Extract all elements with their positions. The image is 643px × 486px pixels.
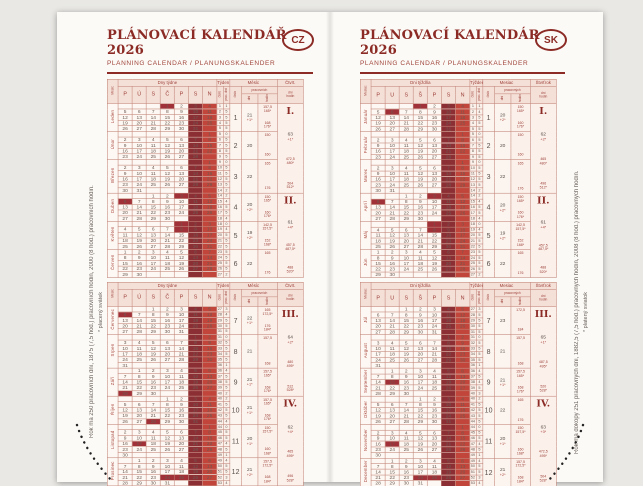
day-name-3: Š	[413, 86, 427, 103]
hours-group: 168176*	[258, 386, 277, 395]
quarter-label: Čtvrt.	[277, 282, 303, 289]
month-hours-cell: 150165*160176*	[511, 104, 530, 132]
day-name-0: P	[371, 289, 385, 306]
country-badge-label: CZ	[291, 35, 304, 46]
hours-value: 168	[511, 362, 530, 366]
month-workdays-extra: +2*	[242, 473, 258, 477]
hours-wrap: 150160	[258, 132, 277, 158]
day-name-5: S	[188, 86, 202, 103]
month-number-cell: 2	[483, 132, 495, 160]
week-sub-label-0-text: číslo	[218, 91, 221, 98]
day-cell	[160, 272, 174, 278]
week-workdays-cell: 2	[223, 272, 229, 278]
month-number-cell: 10	[483, 396, 495, 424]
day-cell: 30	[399, 481, 413, 486]
day-name-2: S	[146, 86, 160, 103]
working-sub-label-1: hodin	[258, 94, 277, 104]
day-cell	[188, 480, 202, 486]
hours-wrap: 157,5168	[258, 335, 277, 367]
month-workdays-cell: 20+1*	[242, 424, 258, 458]
month-name-cell-text: Duben	[111, 199, 115, 213]
month-name-cell: September	[360, 368, 371, 396]
month-workdays-cell: 22+1*	[242, 306, 258, 334]
week-sub-label-0-text: číslo	[471, 294, 474, 301]
day-name-0: P	[118, 86, 132, 103]
month-hours-cell: 150157,5*160168*	[511, 424, 530, 458]
month-hours-cell: 165176	[511, 396, 530, 424]
hours-value: 165	[511, 162, 530, 166]
month-name-cell: Březen	[107, 160, 118, 194]
month-workdays-extra: +2*	[242, 236, 258, 240]
table-scale-wrap: MěsícDny týdneTýdenMěsícČtvrt.PÚSČPSNčís…	[107, 79, 304, 278]
hours-group: 488520*	[540, 266, 547, 275]
table-scale-wrap: MesiacDni týždňaTýždeňMesiacŠtvrťrokPUSŠ…	[360, 79, 557, 278]
month-workdays-cell: 22	[242, 160, 258, 194]
working-sub-label-0: dní	[495, 297, 511, 307]
month-workdays-cell: 20+2*	[495, 193, 511, 221]
week-workdays-cell: 2	[476, 272, 482, 278]
hours-value: 520*	[287, 270, 294, 274]
hours-group: 165	[511, 251, 530, 256]
working-sub-label-0: dní	[495, 94, 511, 104]
month-number-cell: 11	[230, 424, 242, 458]
hours-value: 157,5	[258, 337, 277, 341]
hours-group: 520528*	[540, 385, 547, 394]
month-workdays-extra: +1*	[242, 411, 258, 415]
hours-value: 176	[258, 187, 277, 191]
hours-group: 168176*	[258, 414, 277, 423]
quarter-sub-label: dní hodín	[530, 86, 556, 103]
hours-group: 157,5172,5*	[258, 460, 277, 469]
hours-wrap: 157,5172,5*168184*	[511, 459, 530, 485]
month-hours-cell: 150157,5*160168*	[258, 424, 277, 458]
hours-value: 495*	[287, 365, 294, 369]
working-sub-label-1-text: hodin	[266, 94, 269, 102]
day-cell	[203, 480, 217, 486]
month-hours-cell: 142,5157,5*152168*	[258, 221, 277, 249]
month-name-cell-text: Červenec	[111, 309, 115, 330]
hours-wrap: 157,5165*168176*	[258, 104, 277, 130]
month-hours-cell: 157,5168	[511, 335, 530, 369]
calendar-table: MěsícDny týdneTýdenMěsícČtvrt.PÚSČPSNčís…	[107, 79, 304, 278]
hours-wrap: 165172,5*176184*	[258, 307, 277, 333]
month-name-cell-text: Březen	[111, 168, 115, 183]
day-name-2: S	[399, 289, 413, 306]
quarter-cell: I.62+2*465480*496512*	[530, 104, 556, 194]
day-cell	[441, 272, 455, 278]
quarter-cell: IV.62+4*465495*496528*	[277, 396, 303, 486]
month-number-cell: 8	[483, 335, 495, 369]
working-sub-label-0: dní	[242, 94, 258, 104]
day-name-5: S	[441, 86, 455, 103]
day-name-4: P	[427, 86, 441, 103]
working-sub-label-0-text: dní	[248, 299, 251, 304]
hours-wrap: 150157,5*160168*	[511, 425, 530, 457]
month-corner-label: Mesiac	[360, 79, 371, 103]
calendar-table: MěsícDny týdneTýdenMěsícČtvrt.PÚSČPSNčís…	[107, 282, 304, 486]
hours-group: 157,5	[511, 337, 530, 342]
month-name-cell-text: Leden	[111, 110, 115, 123]
hours-group: 176	[511, 418, 530, 423]
quarter-wrap: I.63+1*472,5480*504512*	[278, 104, 303, 192]
hours-group: 157,5	[258, 336, 277, 341]
hours-value: 480*	[286, 162, 295, 166]
quarter-wrap: IV.62+4*465495*496528*	[278, 397, 303, 485]
quarter-wrap: II.61+4*457,5487,5*488520*	[531, 194, 556, 277]
hours-value: 150	[511, 134, 530, 138]
hours-group: 457,5487,5*	[538, 243, 548, 252]
hours-value: 495*	[287, 455, 294, 459]
day-name-1: Ú	[132, 289, 146, 306]
hours-value: 160	[511, 154, 530, 158]
hours-wrap: 142,5157,5*152168*	[258, 222, 277, 248]
hours-value: 157,5*	[258, 431, 277, 435]
page-header: PLÁNOVACÍ KALENDÁŘ 2026 PLANNING CALENDA…	[107, 28, 313, 74]
hours-value: 165	[258, 252, 277, 256]
month-number-label-text: číslo	[487, 294, 490, 301]
hours-wrap: 150157,5*160168*	[258, 425, 277, 457]
month-name-cell-text: December	[364, 460, 368, 482]
quarter-cell: III.64+2*480495*512528*	[277, 306, 303, 396]
working-sub-label-1-text: hodin	[266, 297, 269, 305]
hours-group: 168	[258, 362, 277, 367]
hours-group: 184	[511, 328, 530, 333]
month-workdays-cell: 22	[495, 396, 511, 424]
month-workdays-cell: 20+2*	[242, 193, 258, 221]
month-hours-cell: 157,5165*168176*	[258, 368, 277, 396]
month-number-cell: 6	[483, 249, 495, 277]
month-name-cell: Říjen	[107, 396, 118, 424]
week-workdays-cell: 4	[223, 480, 229, 486]
day-name-6: N	[203, 86, 217, 103]
quarter-workdays: 62+2*	[540, 132, 546, 142]
day-cell	[427, 481, 441, 486]
quarter-sub-label: dní hodín	[530, 289, 556, 306]
hours-group: 176184*	[258, 324, 277, 333]
hours-wrap: 150165*160176*	[258, 194, 277, 220]
week-sub-label-0-text: číslo	[218, 294, 221, 301]
hours-group: 496512*	[540, 182, 547, 191]
day-name-3: Š	[413, 289, 427, 306]
day-cell	[456, 272, 470, 278]
hours-value: 157,5*	[511, 228, 530, 232]
hours-value: 495*	[539, 365, 548, 369]
month-name-cell-text: Január	[364, 109, 368, 124]
hours-value: 157,5	[511, 337, 530, 341]
page-subtitle: PLANNING CALENDAR / PLANUNGSKALENDER	[360, 60, 565, 67]
hours-wrap: 157,5168	[511, 335, 530, 367]
month-corner-label-text: Mesiac	[364, 288, 367, 298]
month-number-cell: 5	[230, 221, 242, 249]
month-name-cell: Září	[107, 368, 118, 396]
table-scale-wrap: MesiacDni týždňaTýždeňMesiacŠtvrťrokPUSŠ…	[360, 282, 557, 486]
month-name-cell-text: Červen	[111, 254, 115, 270]
hours-group: 176	[511, 187, 530, 192]
day-name-1: U	[385, 86, 399, 103]
month-number-cell: 7	[483, 307, 495, 335]
month-name-cell-text: Marec	[364, 169, 368, 182]
hours-wrap: 172,5184	[511, 307, 530, 333]
working-sub-label-1: hodin	[258, 297, 277, 307]
hours-group: 160168*	[258, 447, 277, 456]
hours-group: 168	[511, 362, 530, 367]
quarter-cell: II.61+4*457,5487,5*488520*	[530, 193, 556, 277]
working-sub-label-0-text: dní	[501, 299, 504, 304]
quarter-workdays: 62+4*	[287, 425, 293, 435]
week-sub-label-1-text: prac. dní	[225, 88, 228, 101]
hours-group: 152168*	[511, 239, 530, 248]
month-workdays-extra: +1*	[242, 322, 258, 326]
hours-value: 168*	[511, 452, 530, 456]
month-name-cell-text: Júl	[364, 316, 368, 322]
month-workdays-extra: +1*	[495, 442, 511, 446]
hours-wrap: 165176	[258, 160, 277, 192]
table-body: Júl12345273723172,5184III.65+1*487,5495*…	[360, 307, 556, 486]
month-workdays-extra: +2*	[495, 119, 511, 123]
hours-group: 157,5172,5*	[511, 460, 530, 469]
month-number-cell: 5	[483, 221, 495, 249]
month-workdays-extra: +2*	[242, 208, 258, 212]
table-body: Leden123411121+1*157,5165*168176*I.63+1*…	[107, 103, 303, 277]
hours-group: 504512*	[287, 182, 294, 191]
month-name-cell: Květen	[107, 221, 118, 249]
month-number-cell: 6	[230, 249, 242, 277]
month-label: Mesiac	[483, 79, 531, 86]
month-name-cell: Február	[360, 132, 371, 160]
table-body: Január123411120+2*150165*160176*I.62+2*4…	[360, 104, 556, 278]
hours-value: 165	[258, 162, 277, 166]
hours-value: 184	[511, 329, 530, 333]
day-cell: 31	[160, 480, 174, 486]
month-hours-cell: 165176	[258, 249, 277, 277]
month-workdays-cell: 20+1*	[495, 424, 511, 458]
day-cell	[441, 481, 455, 486]
hours-value: 487,5*	[538, 248, 548, 252]
hours-value: 176	[511, 272, 530, 276]
month-hours-cell: 172,5184	[511, 307, 530, 335]
hours-value: 160	[258, 154, 277, 158]
month-name-cell: Červen	[107, 249, 118, 277]
month-number-cell: 8	[230, 334, 242, 368]
working-sub-label-0-text: dní	[501, 96, 504, 101]
day-cell	[203, 272, 217, 278]
day-cell	[188, 272, 202, 278]
month-hours-cell: 165176	[258, 160, 277, 194]
hours-value: 176*	[258, 215, 277, 219]
hours-value: 168*	[258, 452, 277, 456]
hours-value: 165	[511, 399, 530, 403]
hours-value: 487,5*	[285, 248, 295, 252]
hours-group: 160	[511, 153, 530, 158]
day-cell	[146, 272, 160, 278]
week-label: Týden	[217, 79, 230, 86]
hours-value: 176	[258, 271, 277, 275]
month-name-cell: Júl	[360, 307, 371, 335]
days-of-week-label: Dni týždňa	[371, 79, 470, 86]
hours-group: 168176*	[258, 121, 277, 130]
month-workdays-cell: 21	[495, 335, 511, 369]
quarter-cell: II.61+4*457,5487,5*488520*	[277, 193, 303, 277]
quarter-roman: IV.	[536, 399, 550, 409]
month-workdays-extra: +1*	[242, 119, 258, 123]
month-name-cell: Apríl	[360, 193, 371, 221]
quarter-label: Štvrťrok	[530, 282, 556, 289]
table-head: MesiacDni týždňaTýždeňMesiacŠtvrťrokPUSŠ…	[360, 282, 556, 306]
hours-value: 165*	[258, 403, 277, 407]
hours-group: 168184*	[511, 476, 530, 485]
country-badge-cz: CZ	[282, 29, 314, 51]
day-cell	[413, 272, 427, 278]
month-name-cell-text: November	[364, 429, 368, 451]
day-name-0: P	[371, 86, 385, 103]
head-row: MěsícDny týdneTýdenMěsícČtvrt.	[107, 282, 303, 289]
month-number-cell: 11	[483, 424, 495, 458]
hours-value: 172,5*	[258, 464, 277, 468]
hours-value: 512*	[540, 186, 547, 190]
calendar-table-jan-jun: MěsícDny týdneTýdenMěsícČtvrt.PÚSČPSNčís…	[107, 79, 330, 277]
month-name-cell-text: September	[364, 369, 368, 393]
head-row: PÚSČPSNčísloprac. dníčíslopracovníchdní …	[107, 289, 303, 297]
month-name-cell-text: Srpen	[111, 344, 115, 357]
month-workdays-cell: 21+1*	[242, 103, 258, 131]
hours-value: 512*	[287, 186, 294, 190]
day-name-6: N	[456, 289, 470, 306]
page-title: PLÁNOVACÍ KALENDÁR 2026	[360, 28, 565, 58]
quarter-roman: III.	[282, 309, 299, 319]
day-cell	[456, 481, 470, 486]
month-number-label-text: číslo	[487, 91, 490, 98]
day-cell	[174, 272, 188, 278]
head-row: PUSŠPSNčísloprac. dníčíslopracovnýchdní …	[360, 289, 556, 297]
month-workdays-cell: 23	[495, 307, 511, 335]
hours-value: 176*	[258, 390, 277, 394]
week-label: Týždeň	[470, 79, 483, 86]
month-workdays-cell: 22	[495, 249, 511, 277]
month-workdays-extra: +1*	[242, 383, 258, 387]
month-hours-cell: 165172,5*176184*	[258, 306, 277, 334]
working-sub-label-0-text: dní	[248, 96, 251, 101]
day-cell: 28	[371, 481, 385, 486]
hours-group: 150	[258, 133, 277, 138]
working-sub-label-1-text: hodín	[519, 297, 522, 305]
month-name-cell: Červenec	[107, 306, 118, 334]
hours-value: 480*	[540, 162, 547, 166]
hours-wrap: 157,5172,5*168184*	[258, 459, 277, 485]
working-sub-label-1-text: hodín	[519, 94, 522, 102]
table-body: Červenec12345273722+1*165172,5*176184*II…	[107, 306, 303, 486]
day-cell	[427, 272, 441, 278]
hours-group: 457,5487,5*	[285, 243, 295, 252]
head-row: MesiacDni týždňaTýždeňMesiacŠtvrťrok	[360, 79, 556, 86]
month-workdays-cell: 21+1*	[495, 368, 511, 396]
quarter-roman: II.	[284, 196, 296, 206]
hours-value: 172,5	[511, 309, 530, 313]
hours-group: 142,5157,5*	[258, 223, 277, 232]
month-name-cell: Srpen	[107, 334, 118, 368]
month-hours-cell: 150165*160176*	[258, 193, 277, 221]
hours-group: 160176*	[511, 121, 530, 130]
hours-value: 172,5*	[511, 465, 530, 469]
week-sub-label-1-text: prac. dní	[478, 291, 481, 304]
day-name-3: Č	[160, 289, 174, 306]
month-workdays-cell: 22	[242, 249, 258, 277]
hours-value: 165*	[511, 375, 530, 379]
hours-value: 168	[258, 362, 277, 366]
page-header: PLÁNOVACÍ KALENDÁR 2026 PLANNING CALENDA…	[360, 28, 565, 74]
country-badge-sk: SK	[535, 29, 567, 51]
calendar-table-jan-jun: MesiacDni týždňaTýždeňMesiacŠtvrťrokPUSŠ…	[360, 79, 603, 277]
month-name-cell-text: Září	[111, 377, 115, 386]
week-sub-label-1-text: prac. dní	[478, 88, 481, 101]
month-name-cell: Duben	[107, 193, 118, 221]
quarter-roman: III.	[535, 310, 552, 320]
days-of-week-label: Dny týdne	[118, 282, 217, 289]
working-sub-label-1: hodín	[511, 94, 530, 104]
quarter-workdays: 63+1*	[287, 132, 293, 142]
page-cz: PLÁNOVACÍ KALENDÁŘ 2026 PLANNING CALENDA…	[57, 12, 330, 482]
week-sub-label-1-text: prac. dní	[225, 291, 228, 304]
hours-group: 176	[258, 187, 277, 192]
month-name-cell: Leden	[107, 103, 118, 131]
month-number-cell: 9	[483, 368, 495, 396]
month-label: Mesiac	[483, 282, 531, 289]
month-name-cell: Október	[360, 396, 371, 424]
month-corner-label: Měsíc	[107, 79, 118, 103]
month-number-cell: 1	[230, 103, 242, 131]
month-number-cell: 2	[230, 131, 242, 159]
month-corner-label: Mesiac	[360, 282, 371, 306]
month-name-cell: Jún	[360, 249, 371, 277]
hours-group: 150165*	[258, 195, 277, 204]
month-workdays-cell: 21+1*	[242, 368, 258, 396]
quarter-sub-label: dní hodin	[277, 289, 303, 306]
hours-wrap: 142,5157,5*152168*	[511, 222, 530, 248]
hours-group: 465495*	[287, 450, 294, 459]
perforation-arc	[543, 422, 587, 482]
month-hours-cell: 157,5165*168176*	[511, 368, 530, 396]
hours-group: 142,5157,5*	[511, 223, 530, 232]
day-cell: 30	[385, 272, 399, 278]
hours-value: 176	[511, 187, 530, 191]
day-cell: 29	[132, 480, 146, 486]
day-name-1: U	[385, 289, 399, 306]
working-sub-label-1: hodín	[511, 297, 530, 307]
month-workdays-cell: 19+2*	[242, 221, 258, 249]
hours-group: 480495*	[287, 360, 294, 369]
hours-group: 160	[258, 153, 277, 158]
quarter-workdays-extra: +4*	[287, 226, 293, 230]
month-number-label: číslo	[483, 289, 495, 306]
hours-group: 168184*	[258, 475, 277, 484]
hours-group: 150157,5*	[511, 426, 530, 435]
month-hours-cell: 157,5165*168176*	[258, 396, 277, 424]
month-corner-label-text: Měsíc	[111, 289, 114, 298]
month-corner-label-text: Měsíc	[111, 86, 114, 95]
country-badge-label: SK	[544, 35, 558, 46]
divider-rule	[360, 72, 565, 74]
month-corner-label-text: Mesiac	[364, 85, 367, 95]
hours-value: 172,5*	[258, 313, 277, 317]
divider-rule	[107, 72, 313, 74]
month-workdays-extra: +1*	[242, 442, 258, 446]
table-head: MěsícDny týdneTýdenMěsícČtvrt.PÚSČPSNčís…	[107, 79, 303, 103]
hours-value: 176*	[511, 215, 530, 219]
hours-value: 165*	[258, 375, 277, 379]
quarter-roman: I.	[286, 106, 294, 116]
day-name-5: S	[188, 289, 202, 306]
hours-group: 488520*	[287, 266, 294, 275]
quarter-sub-label: dní hodin	[277, 86, 303, 103]
